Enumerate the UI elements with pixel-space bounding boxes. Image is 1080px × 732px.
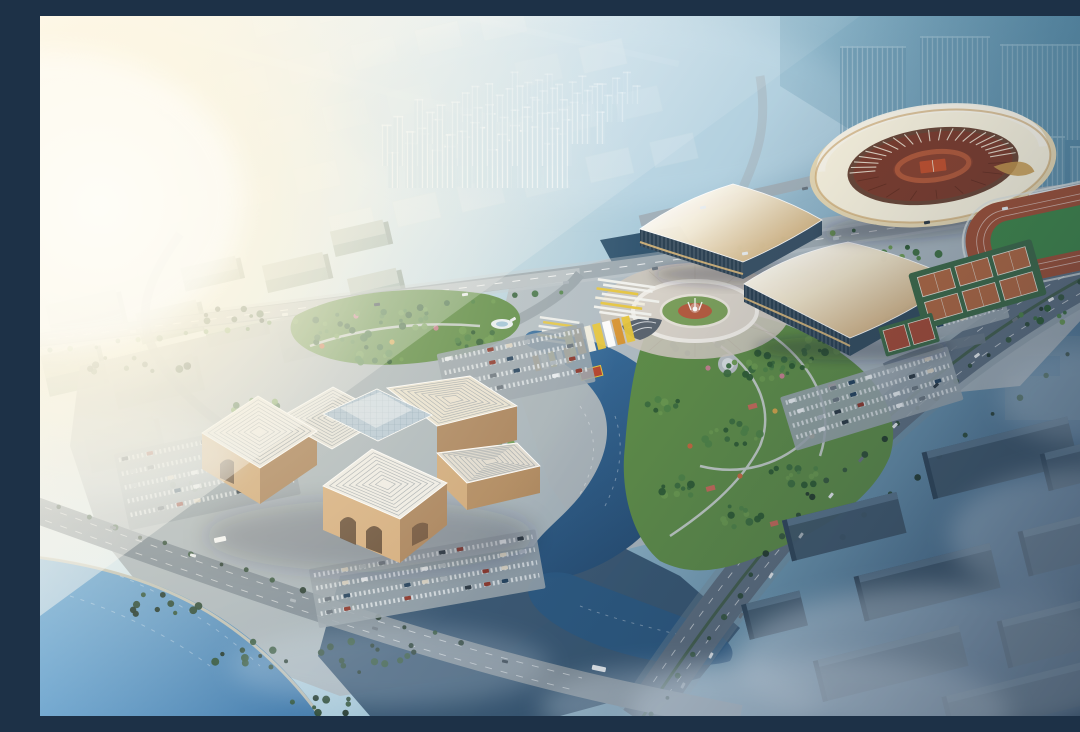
scene-canvas [40,16,1080,716]
dusk-vignette [40,16,1080,716]
aerial-rendering [40,16,1080,716]
